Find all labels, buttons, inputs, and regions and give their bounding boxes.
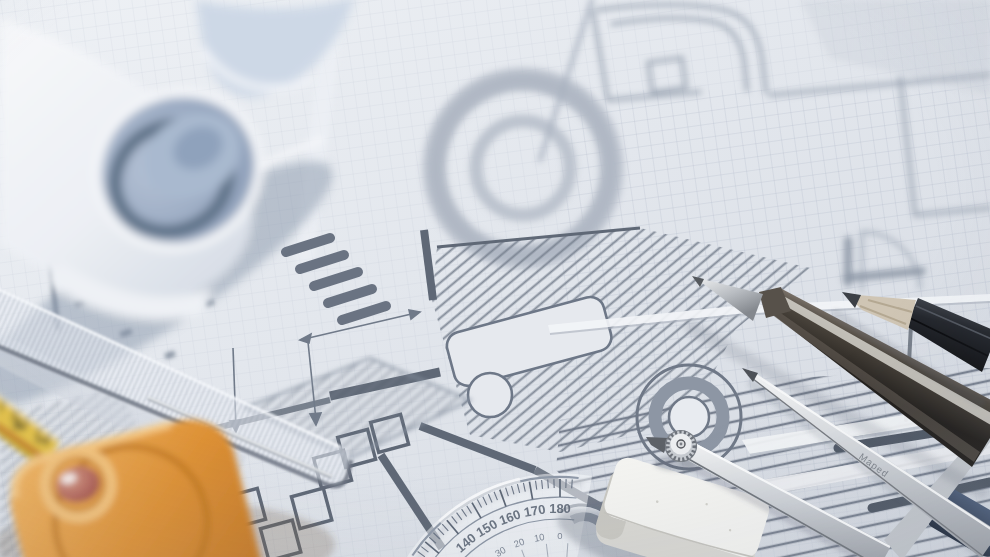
photo-blueprints-and-tools: 140 150 160 170 180 40 30 20 10 0 [0, 0, 990, 557]
vignette-overlay [0, 0, 990, 557]
